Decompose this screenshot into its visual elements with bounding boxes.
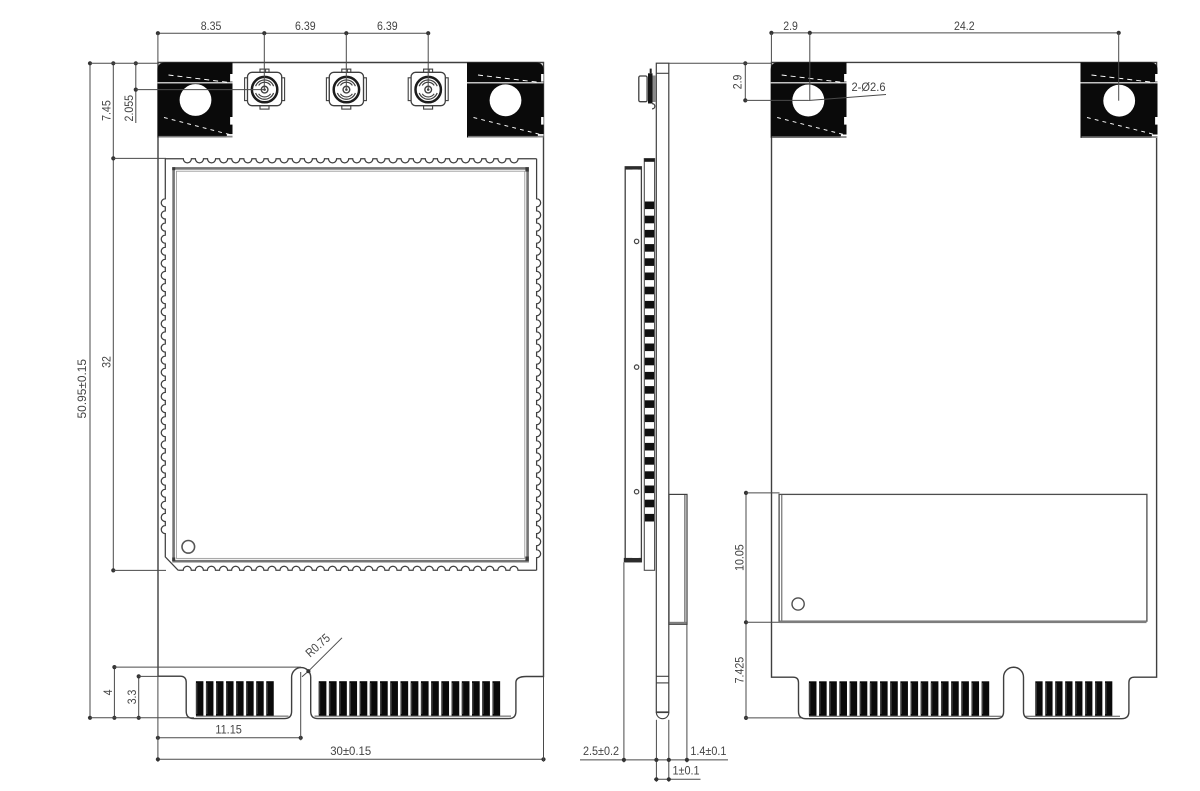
svg-text:1±0.1: 1±0.1 (672, 763, 699, 777)
svg-text:2.055: 2.055 (122, 95, 136, 122)
svg-text:2.9: 2.9 (731, 74, 745, 89)
svg-text:4: 4 (101, 689, 115, 695)
svg-text:2.5±0.2: 2.5±0.2 (583, 744, 619, 758)
svg-text:7.45: 7.45 (100, 100, 114, 121)
svg-text:2.9: 2.9 (783, 19, 798, 33)
svg-text:7.425: 7.425 (732, 657, 746, 684)
svg-text:11.15: 11.15 (215, 722, 242, 736)
svg-text:10.05: 10.05 (732, 544, 746, 571)
svg-text:24.2: 24.2 (954, 19, 975, 33)
svg-text:6.39: 6.39 (295, 19, 316, 33)
svg-text:3.3: 3.3 (125, 690, 139, 705)
svg-text:8.35: 8.35 (201, 19, 222, 33)
svg-text:2-Ø2.6: 2-Ø2.6 (852, 80, 886, 94)
svg-text:32: 32 (100, 356, 114, 368)
svg-text:1.4±0.1: 1.4±0.1 (690, 744, 726, 758)
svg-text:50.95±0.15: 50.95±0.15 (75, 359, 89, 419)
svg-text:30±0.15: 30±0.15 (330, 744, 371, 758)
svg-text:6.39: 6.39 (377, 19, 398, 33)
